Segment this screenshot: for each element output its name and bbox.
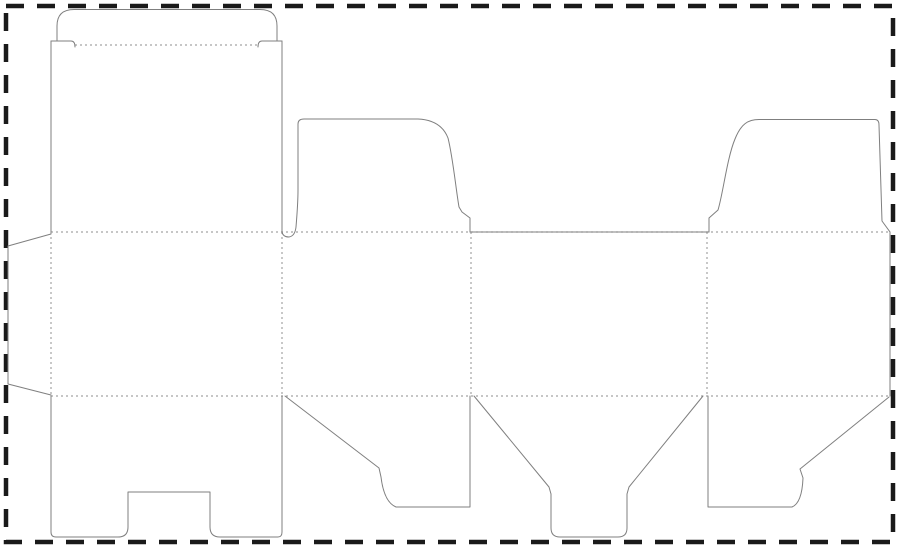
tuck-flap-outline <box>57 10 277 42</box>
sheet-boundary <box>6 6 893 542</box>
tuck-shoulder-left <box>51 41 75 47</box>
dust-flap-left-outline <box>282 119 470 237</box>
glue-flap-outline <box>8 234 51 395</box>
dust-flap-right-outline <box>709 120 890 233</box>
bottom-flap-side1-outline <box>285 396 470 507</box>
cut-lines <box>8 10 890 538</box>
bottom-funnel-flap-outline <box>474 396 703 537</box>
bottom-flap-side2-outline <box>708 396 889 507</box>
tuck-shoulder-right <box>258 41 282 47</box>
dieline-sheet <box>0 0 900 548</box>
dieline-canvas <box>0 0 900 548</box>
lock-bottom-flap-outline <box>51 396 282 537</box>
